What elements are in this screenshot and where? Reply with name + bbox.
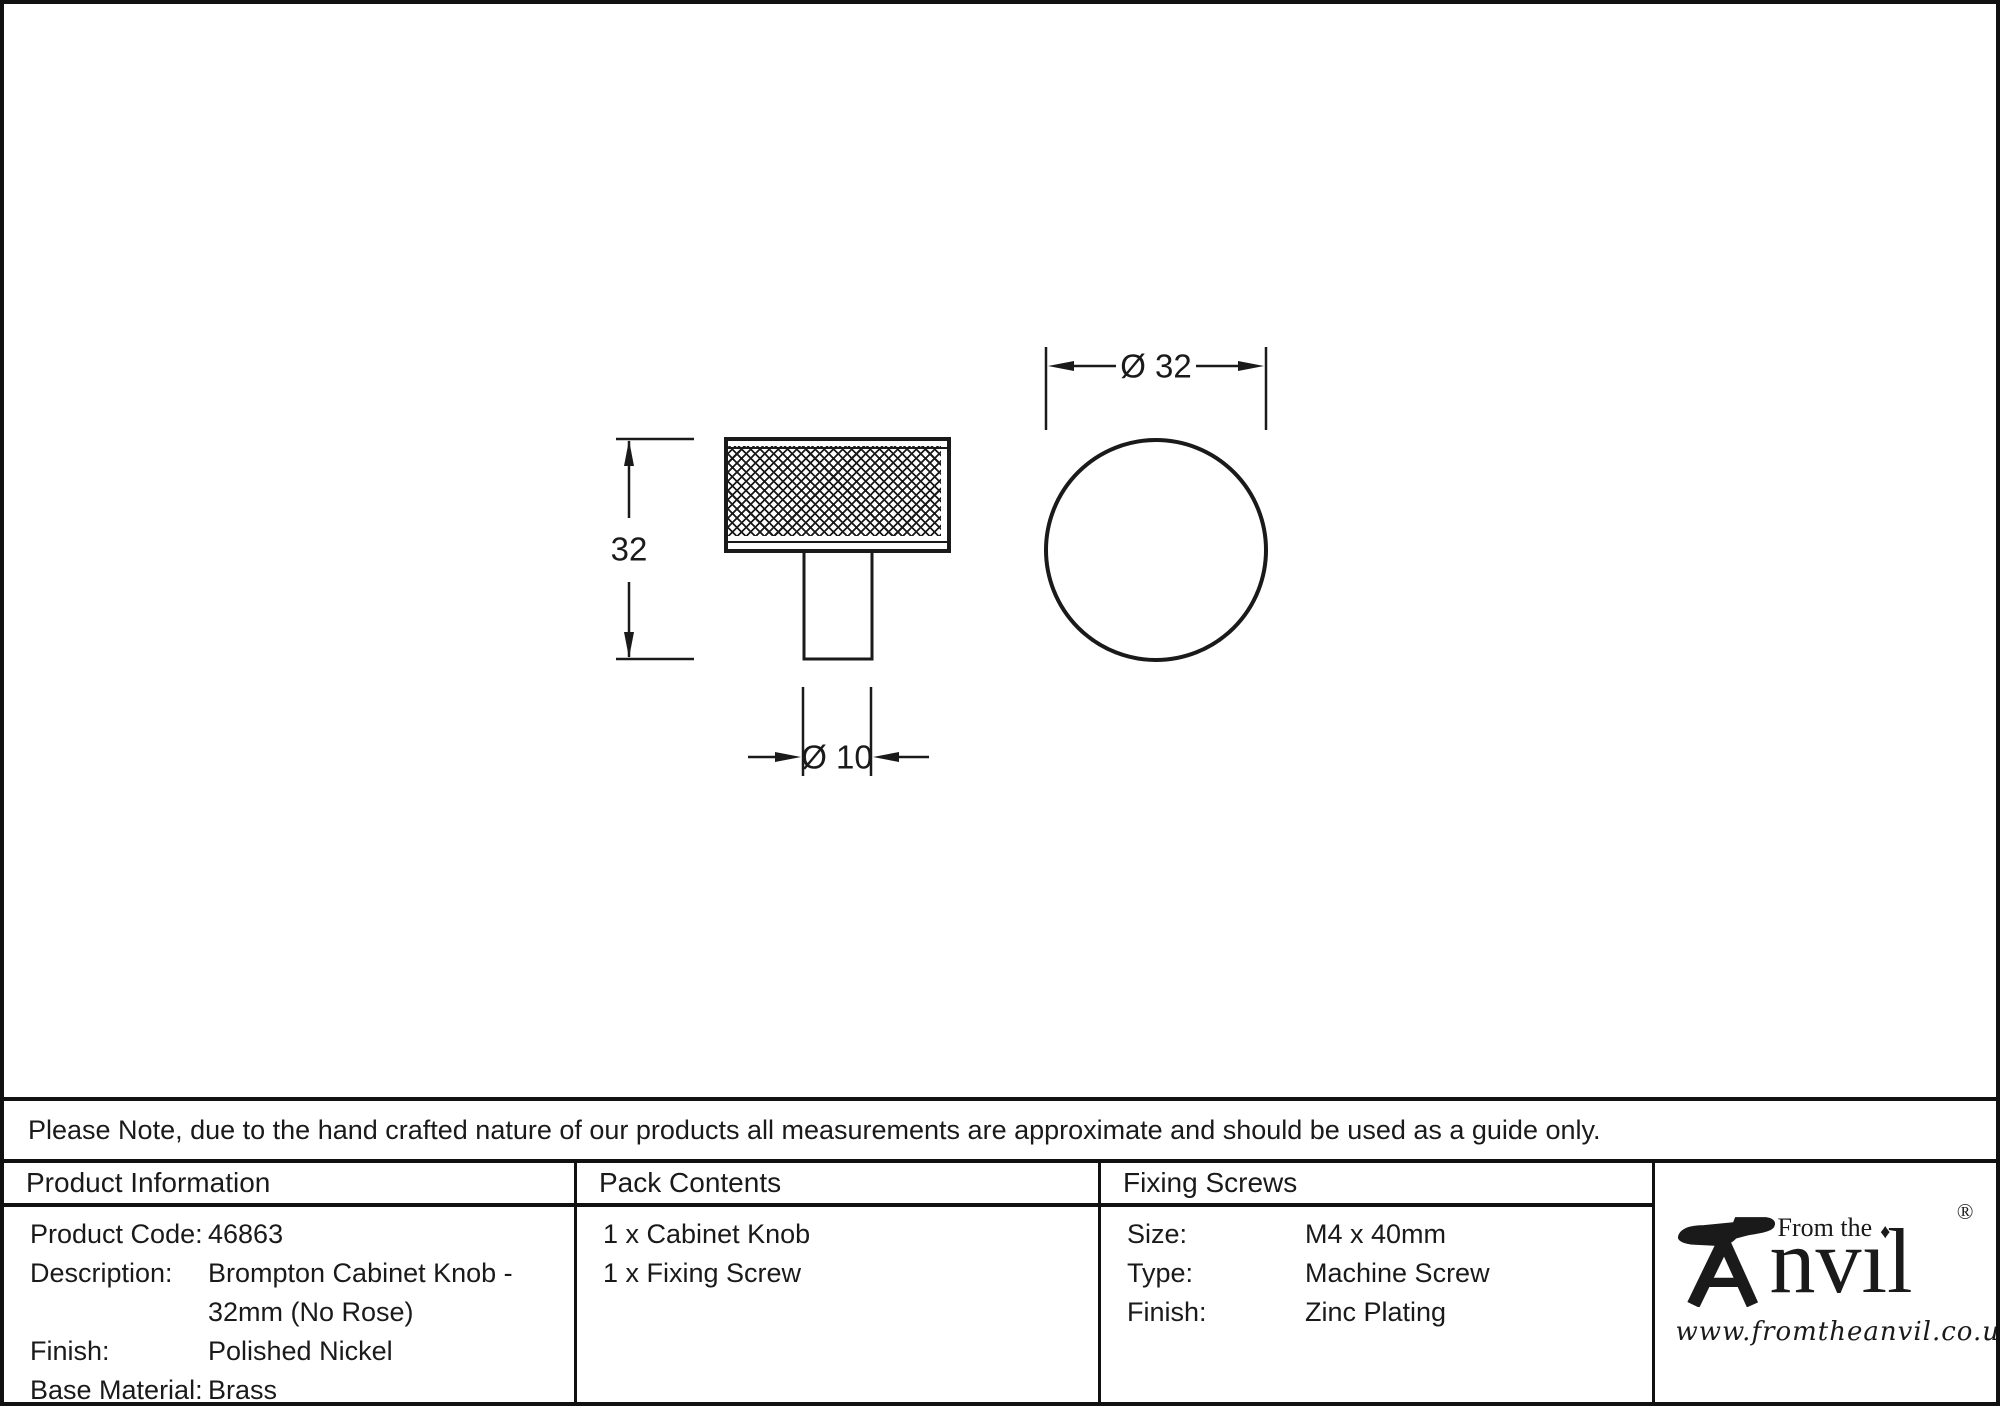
- arrow-left: [873, 752, 899, 762]
- dim-label-face-diameter: Ø 32: [1120, 348, 1192, 385]
- row-value: 46863: [208, 1215, 283, 1254]
- fixing-screws-header: Fixing Screws: [1101, 1163, 1652, 1207]
- anvil-icon: [1676, 1217, 1778, 1307]
- row-value: Machine Screw: [1305, 1254, 1490, 1293]
- knob-stem: [804, 551, 872, 659]
- pack-contents-body: 1 x Cabinet Knob 1 x Fixing Screw: [577, 1207, 1098, 1293]
- brand-logo-cell: From the♦ ® nvıl www.fromtheanvil.co.uk: [1655, 1163, 1996, 1402]
- arrow-left: [1048, 361, 1074, 371]
- row-label: Type:: [1127, 1254, 1305, 1293]
- product-information-header: Product Information: [4, 1163, 574, 1207]
- product-information-body: Product Code: 46863 Description: Brompto…: [4, 1207, 574, 1406]
- arrow-right: [775, 752, 801, 762]
- list-item: 1 x Fixing Screw: [603, 1254, 1098, 1293]
- drawing-linework: 32 Ø 10 Ø 32: [4, 4, 1996, 1097]
- measurement-note: Please Note, due to the hand crafted nat…: [4, 1097, 1996, 1163]
- technical-drawing: 32 Ø 10 Ø 32: [4, 4, 1996, 1097]
- row-value: Brass: [208, 1371, 277, 1406]
- table-row: Type: Machine Screw: [1127, 1254, 1652, 1293]
- table-row: Size: M4 x 40mm: [1127, 1215, 1652, 1254]
- front-view: [1046, 347, 1266, 660]
- side-view: [616, 439, 949, 776]
- fixing-screws-column: Fixing Screws Size: M4 x 40mm Type: Mach…: [1101, 1163, 1655, 1402]
- table-row: Finish: Polished Nickel: [30, 1332, 574, 1371]
- knob-head: [726, 439, 949, 551]
- arrow-down: [624, 632, 634, 658]
- row-value: M4 x 40mm: [1305, 1215, 1446, 1254]
- row-value: Zinc Plating: [1305, 1293, 1446, 1332]
- row-label: Product Code:: [30, 1215, 208, 1254]
- knob-face-circle: [1046, 440, 1266, 660]
- from-the-anvil-logo: From the♦ ® nvıl www.fromtheanvil.co.uk: [1676, 1201, 1976, 1359]
- row-value: Polished Nickel: [208, 1332, 393, 1371]
- datasheet-page: 32 Ø 10 Ø 32 Please Note, due to the han…: [0, 0, 2000, 1406]
- arrow-up: [624, 440, 634, 466]
- row-label: Description:: [30, 1254, 208, 1293]
- dim-label-height: 32: [611, 531, 648, 568]
- table-row: Base Material: Brass: [30, 1371, 574, 1406]
- logo-brand-name: nvıl: [1770, 1215, 1913, 1307]
- spec-table: Product Information Product Code: 46863 …: [4, 1163, 1996, 1402]
- dim-label-stem-diameter: Ø 10: [801, 739, 873, 776]
- pack-contents-header: Pack Contents: [577, 1163, 1098, 1207]
- list-item: 1 x Cabinet Knob: [603, 1215, 1098, 1254]
- product-information-column: Product Information Product Code: 46863 …: [4, 1163, 577, 1402]
- note-text: Please Note, due to the hand crafted nat…: [28, 1115, 1601, 1146]
- table-row: Description: Brompton Cabinet Knob - 32m…: [30, 1254, 574, 1332]
- logo-website-url: www.fromtheanvil.co.uk: [1676, 1317, 1976, 1347]
- arrow-right: [1238, 361, 1264, 371]
- row-value: Brompton Cabinet Knob - 32mm (No Rose): [208, 1254, 564, 1332]
- row-label: Base Material:: [30, 1371, 208, 1406]
- registered-trademark-icon: ®: [1957, 1199, 1974, 1225]
- fixing-screws-body: Size: M4 x 40mm Type: Machine Screw Fini…: [1101, 1207, 1652, 1332]
- info-section: Please Note, due to the hand crafted nat…: [4, 1097, 1996, 1402]
- pack-contents-column: Pack Contents 1 x Cabinet Knob 1 x Fixin…: [577, 1163, 1101, 1402]
- table-row: Product Code: 46863: [30, 1215, 574, 1254]
- row-label: Finish:: [1127, 1293, 1305, 1332]
- row-label: Finish:: [30, 1332, 208, 1371]
- table-row: Finish: Zinc Plating: [1127, 1293, 1652, 1332]
- row-label: Size:: [1127, 1215, 1305, 1254]
